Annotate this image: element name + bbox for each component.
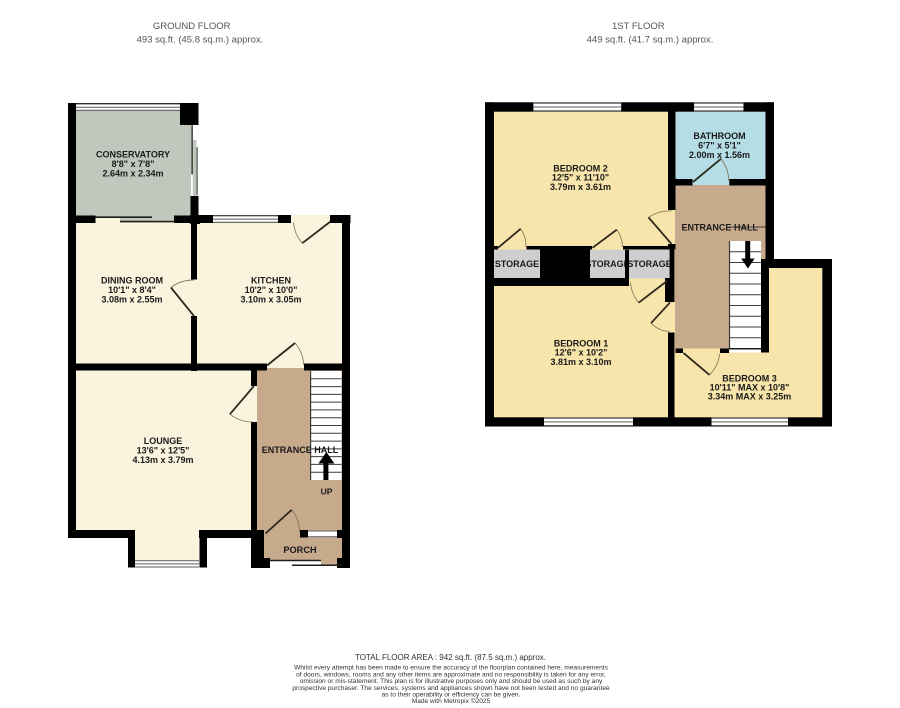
svg-text:Made with Metropix ©2025: Made with Metropix ©2025	[412, 697, 491, 705]
svg-text:3.34m MAX x 3.25m: 3.34m MAX x 3.25m	[708, 391, 792, 401]
svg-text:GROUND FLOOR: GROUND FLOOR	[153, 21, 231, 32]
svg-text:ENTRANCE HALL: ENTRANCE HALL	[681, 222, 758, 232]
svg-text:PORCH: PORCH	[283, 545, 317, 555]
svg-text:2.64m x 2.34m: 2.64m x 2.34m	[102, 168, 163, 178]
svg-text:4.13m x 3.79m: 4.13m x 3.79m	[132, 455, 193, 465]
svg-text:3.79m x 3.61m: 3.79m x 3.61m	[550, 182, 611, 192]
svg-text:ENTRANCE HALL: ENTRANCE HALL	[262, 445, 339, 455]
svg-text:STORAGE: STORAGE	[495, 259, 539, 269]
svg-text:STORAGE: STORAGE	[585, 259, 629, 269]
svg-text:TOTAL FLOOR AREA : 942 sq.ft.: TOTAL FLOOR AREA : 942 sq.ft. (87.5 sq.m…	[355, 653, 546, 662]
svg-text:1ST FLOOR: 1ST FLOOR	[612, 21, 665, 32]
svg-text:STORAGE: STORAGE	[627, 259, 671, 269]
svg-text:2.00m x 1.56m: 2.00m x 1.56m	[689, 150, 750, 160]
svg-text:3.10m x 3.05m: 3.10m x 3.05m	[240, 294, 301, 304]
svg-text:449 sq.ft. (41.7 sq.m.) approx: 449 sq.ft. (41.7 sq.m.) approx.	[587, 34, 714, 45]
svg-text:493 sq.ft. (45.8 sq.m.) approx: 493 sq.ft. (45.8 sq.m.) approx.	[137, 34, 264, 45]
svg-text:3.81m x 3.10m: 3.81m x 3.10m	[550, 357, 611, 367]
svg-text:3.08m x 2.55m: 3.08m x 2.55m	[101, 294, 162, 304]
svg-text:UP: UP	[321, 487, 333, 497]
